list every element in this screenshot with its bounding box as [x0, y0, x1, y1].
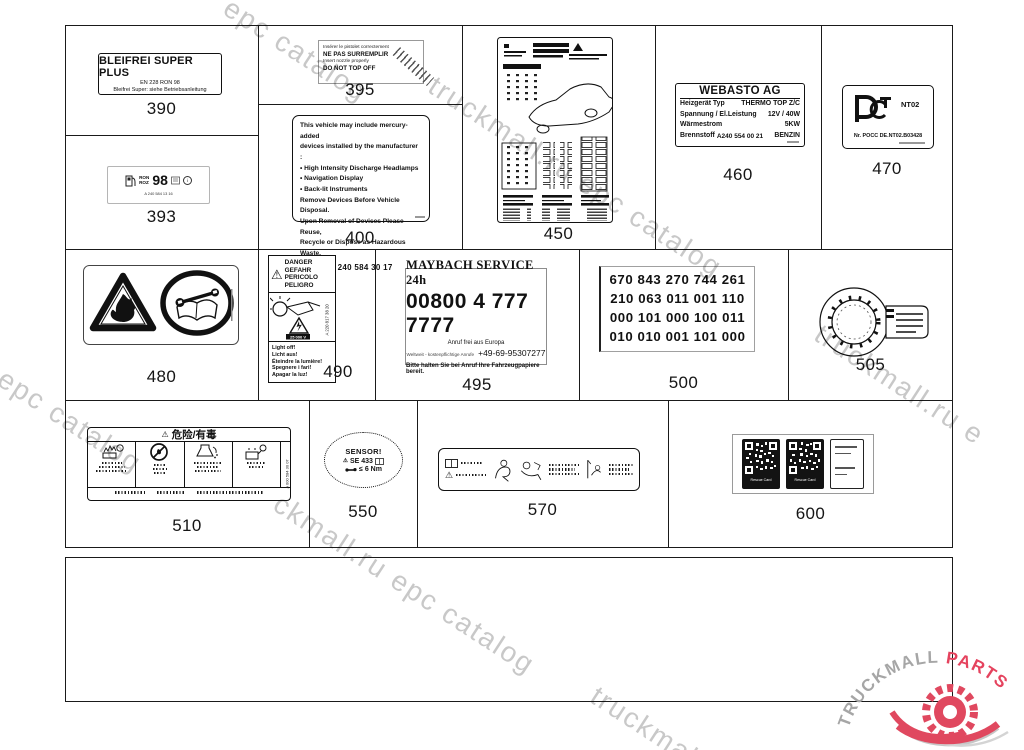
danger-word: DANGER [285, 259, 318, 267]
danger-word: PERICOLO [285, 274, 318, 282]
label-airbag-childseat: ⚠ [438, 448, 640, 491]
label-line: Light off! [272, 345, 332, 352]
cell-395: Insérer le pistolet correctement NE PAS … [258, 25, 462, 104]
part-number-505: 505 [788, 355, 953, 375]
code-row: 010 010 001 101 000 [609, 328, 745, 347]
qr-code-2: Rescue Card [786, 439, 824, 489]
arm-icon [287, 302, 313, 315]
label-title: BLEIFREI SUPER PLUS [99, 55, 221, 79]
label-mercury-warning: This vehicle may include mercury-added d… [292, 115, 430, 222]
pictogram-airbag [584, 455, 604, 485]
cell-450: 450 [462, 25, 655, 249]
micro-code [231, 289, 233, 321]
wrench-icon [345, 467, 357, 473]
empty-cell [65, 557, 953, 702]
part-number-393: 393 [65, 207, 258, 227]
manual-icon [171, 176, 180, 185]
torque-value: ≤ 6 Nm [359, 466, 382, 473]
cell-550: SENSOR! ⚠ SE 433 ≤ 6 Nm 550 [309, 400, 417, 548]
spec-value: 12V / 40W [768, 110, 800, 121]
spec-key: Heizgerät Typ [680, 99, 725, 110]
label-pct-cert: NT02 Nr. POCC DE.NT02.B03428 [842, 85, 934, 149]
logo-text-red: PARTS [945, 648, 1012, 693]
lamp-icon [273, 302, 287, 316]
label-code-matrix: 670 843 270 744 261 210 063 011 001 110 … [599, 266, 755, 352]
cell-393: RON ROZ 98 i A 240 584 13 16 393 [65, 135, 258, 249]
ron-roz-text: RON ROZ [139, 175, 149, 186]
xenon-pictogram: 25 000 V A 220 817 38 20 [269, 293, 335, 342]
part-number-490: 490 [313, 362, 363, 382]
part-number-400: 400 [258, 228, 462, 248]
label-line: • Navigation Display [300, 174, 422, 185]
sensor-code: SE 433 [350, 458, 373, 465]
label-title: SENSOR! [345, 447, 381, 456]
spec-key: Wärmestrom [680, 120, 722, 131]
info-icon: i [183, 176, 192, 185]
phone-number-intl: +49-69-95307277 [478, 348, 545, 358]
code-row: 210 063 011 001 110 [610, 290, 745, 309]
code-row: 000 101 000 100 011 [610, 309, 745, 328]
pictogram-acid-splash [88, 442, 136, 487]
spec-key: Brennstoff [680, 131, 715, 142]
qr-code-1: Rescue Card [742, 439, 780, 489]
label-line: Bleifrei Super: siehe Betriebsanleitung [113, 87, 206, 93]
cell-570: ⚠ [417, 400, 668, 548]
manual-icon [445, 459, 458, 468]
part-number-510: 510 [65, 516, 309, 536]
label-line: Weltweit - kostenpflichtige Anrufe [407, 352, 475, 357]
logo-gear-icon [892, 688, 1008, 746]
warning-icon: ⚠ [271, 268, 283, 281]
cell-390: BLEIFREI SUPER PLUS EN 228 RON 98 Bleifr… [65, 25, 258, 135]
voltage-badge: 25 000 V [290, 334, 306, 339]
octane-value: 98 [152, 172, 168, 188]
cert-number: Nr. POCC DE.NT02.B03428 [843, 133, 933, 139]
label-line: • High Intensity Discharge Headlamps [300, 164, 422, 175]
cell-480: 480 [65, 249, 258, 400]
label-line: This vehicle may include mercury-added [300, 121, 422, 142]
warning-icon: ⚠ [161, 430, 168, 439]
cell-460: WEBASTO AG Heizgerät TypTHERMO TOP Z/C S… [655, 25, 821, 249]
part-number-460: 460 [655, 165, 821, 185]
label-rescue-card: Rescue Card [732, 434, 874, 494]
warning-icon: ⚠ [445, 470, 453, 481]
label-line: Licht aus! [272, 352, 332, 359]
label-title: MAYBACH SERVICE 24h [406, 258, 546, 288]
spec-value: 5KW [785, 120, 800, 131]
part-number-395: 395 [258, 80, 462, 100]
cell-400: This vehicle may include mercury-added d… [258, 104, 462, 249]
fuel-pump-icon [125, 173, 136, 188]
cell-490: ⚠ DANGER GEFAHR PERICOLO PELIGRO [258, 249, 375, 400]
rescue-card-panel [830, 439, 864, 489]
label-title: 危险/有毒 [172, 427, 217, 442]
label-ring-seal [812, 281, 936, 365]
code-row: 670 843 270 744 261 [609, 271, 745, 290]
cell-510: ⚠ 危险/有毒 [65, 400, 309, 548]
label-line: devices installed by the manufacturer : [300, 142, 422, 163]
part-code-vertical: A 000 584 30 07 [281, 442, 290, 487]
label-line: Anruf frei aus Europa [448, 340, 505, 346]
label-maybach-service: MAYBACH SERVICE 24h 00800 4 777 7777 Anr… [405, 268, 547, 365]
cell-500: 670 843 270 744 261 210 063 011 001 110 … [579, 249, 788, 400]
qr-caption: Rescue Card [788, 478, 822, 482]
micro-code [899, 142, 925, 144]
cert-mark: NT02 [901, 100, 919, 109]
danger-word: GEFAHR [285, 267, 318, 275]
danger-header: ⚠ DANGER GEFAHR PERICOLO PELIGRO [269, 256, 335, 293]
label-title: WEBASTO AG [680, 85, 800, 99]
micro-code [787, 141, 799, 143]
spec-key: Spannung / El.Leistung [680, 110, 757, 121]
pictogram-battery-service [233, 442, 281, 487]
label-line: Remove Devices Before Vehicle Disposal. [300, 196, 422, 217]
label-octane-98: RON ROZ 98 i A 240 584 13 16 [107, 166, 210, 204]
part-number-550: 550 [309, 502, 417, 522]
label-line: EN 228 RON 98 [140, 80, 180, 86]
part-number-570: 570 [417, 500, 668, 520]
micro-code [415, 216, 425, 219]
label-fuse-diagram [497, 37, 613, 223]
epc-catalog-page: epc catalog truckmall.ru epc catalog all… [0, 0, 1024, 750]
part-code-vertical: A 220 817 38 20 [325, 296, 330, 336]
qr-caption: Rescue Card [744, 478, 778, 482]
pictogram-rear-facing-seat [519, 455, 545, 485]
label-battery-danger-cn: ⚠ 危险/有毒 [87, 427, 291, 501]
part-number-500: 500 [579, 373, 788, 393]
label-line: • Back-lit Instruments [300, 185, 422, 196]
danger-word: PELIGRO [285, 282, 318, 290]
pictogram-acid-pour [185, 442, 233, 487]
label-line: Bitte halten Sie bei Anruf Ihre Fahrzeug… [406, 363, 546, 375]
cell-505: 505 [788, 249, 953, 400]
phone-number: 00800 4 777 7777 [406, 290, 546, 338]
manual-icon [375, 458, 384, 465]
cell-470: NT02 Nr. POCC DE.NT02.B03428 470 [821, 25, 953, 249]
label-bleifrei-super-plus: BLEIFREI SUPER PLUS EN 228 RON 98 Bleifr… [98, 53, 222, 95]
label-line: Insérer le pistolet correctement [323, 45, 419, 50]
pictogram-no-flames [136, 442, 184, 487]
cell-495: MAYBACH SERVICE 24h 00800 4 777 7777 Anr… [375, 249, 579, 400]
warning-icon: ⚠ [343, 458, 348, 464]
spec-value: THERMO TOP Z/C [741, 99, 800, 110]
cell-600: Rescue Card [668, 400, 953, 548]
pictogram-child-seat [491, 455, 514, 485]
label-sensor: SENSOR! ⚠ SE 433 ≤ 6 Nm [324, 432, 403, 488]
part-number-390: 390 [65, 99, 258, 119]
label-fire-warning [83, 265, 239, 345]
label-webasto: WEBASTO AG Heizgerät TypTHERMO TOP Z/C S… [675, 83, 805, 147]
part-code: A 240 584 13 16 [108, 191, 209, 196]
part-number-495: 495 [375, 375, 579, 395]
part-number-600: 600 [668, 504, 953, 524]
part-number-470: 470 [821, 159, 953, 179]
part-number-480: 480 [65, 367, 258, 387]
part-number-450: 450 [462, 224, 655, 244]
truckmall-parts-logo: TRUCKMALL PARTS [842, 636, 1024, 750]
pct-logo-icon [849, 91, 895, 129]
